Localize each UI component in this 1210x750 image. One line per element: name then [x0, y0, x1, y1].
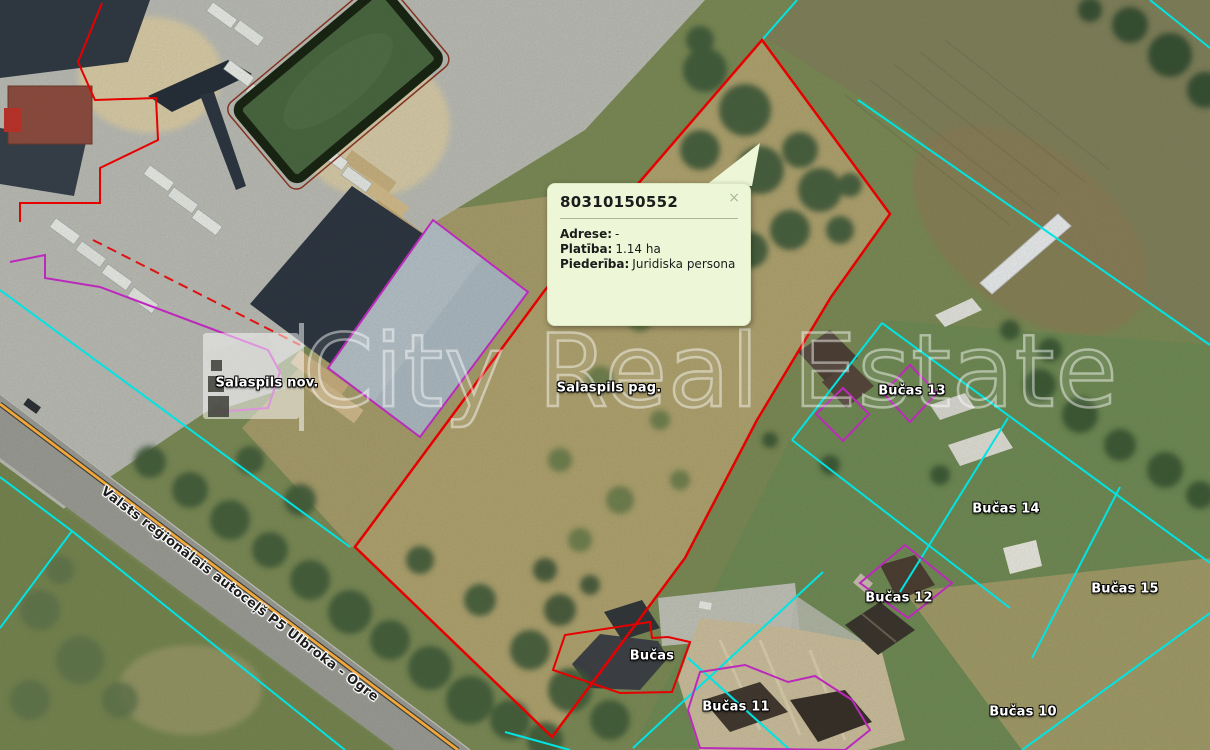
label-parish: Salaspils pag. — [557, 381, 662, 396]
label-parcel-bucas-10: Bučas 10 — [989, 705, 1057, 720]
logo-square — [208, 396, 229, 417]
logo-square — [211, 360, 222, 371]
watermark: City Real Estate — [303, 312, 1119, 430]
label-parcel-bucas-12: Bučas 12 — [865, 591, 933, 606]
label-parcel-bucas-14: Bučas 14 — [972, 502, 1040, 517]
map-viewport[interactable]: City Real Estate Salaspils nov. Salaspil… — [0, 0, 1210, 750]
label-parcel-bucas-11: Bučas 11 — [702, 700, 770, 715]
label-parcel-bucas-15: Bučas 15 — [1091, 582, 1159, 597]
parcel-info-popup: × 80310150552 Adrese:- Platība:1.14 ha P… — [547, 183, 751, 326]
popup-pointer — [690, 139, 770, 189]
label-parcel-bucas-13: Bučas 13 — [878, 384, 946, 399]
popup-title: 80310150552 — [560, 193, 738, 211]
popup-field-area: Platība:1.14 ha — [560, 242, 738, 257]
popup-field-address: Adrese:- — [560, 227, 738, 242]
close-icon[interactable]: × — [728, 191, 740, 205]
popup-field-ownership: Piederība:Juridiska persona — [560, 257, 738, 272]
label-parcel-bucas: Bučas — [630, 649, 674, 664]
label-municipality: Salaspils nov. — [216, 376, 319, 391]
popup-divider — [560, 218, 738, 219]
